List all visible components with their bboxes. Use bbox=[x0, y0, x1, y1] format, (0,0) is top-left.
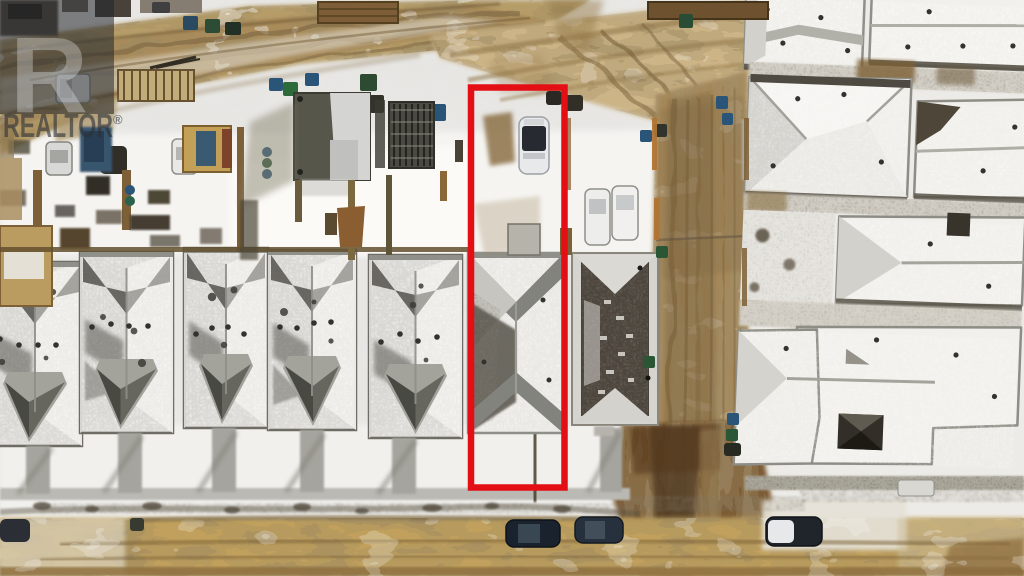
svg-text:®: ® bbox=[113, 112, 123, 127]
svg-text:REALTOR: REALTOR bbox=[3, 107, 113, 144]
